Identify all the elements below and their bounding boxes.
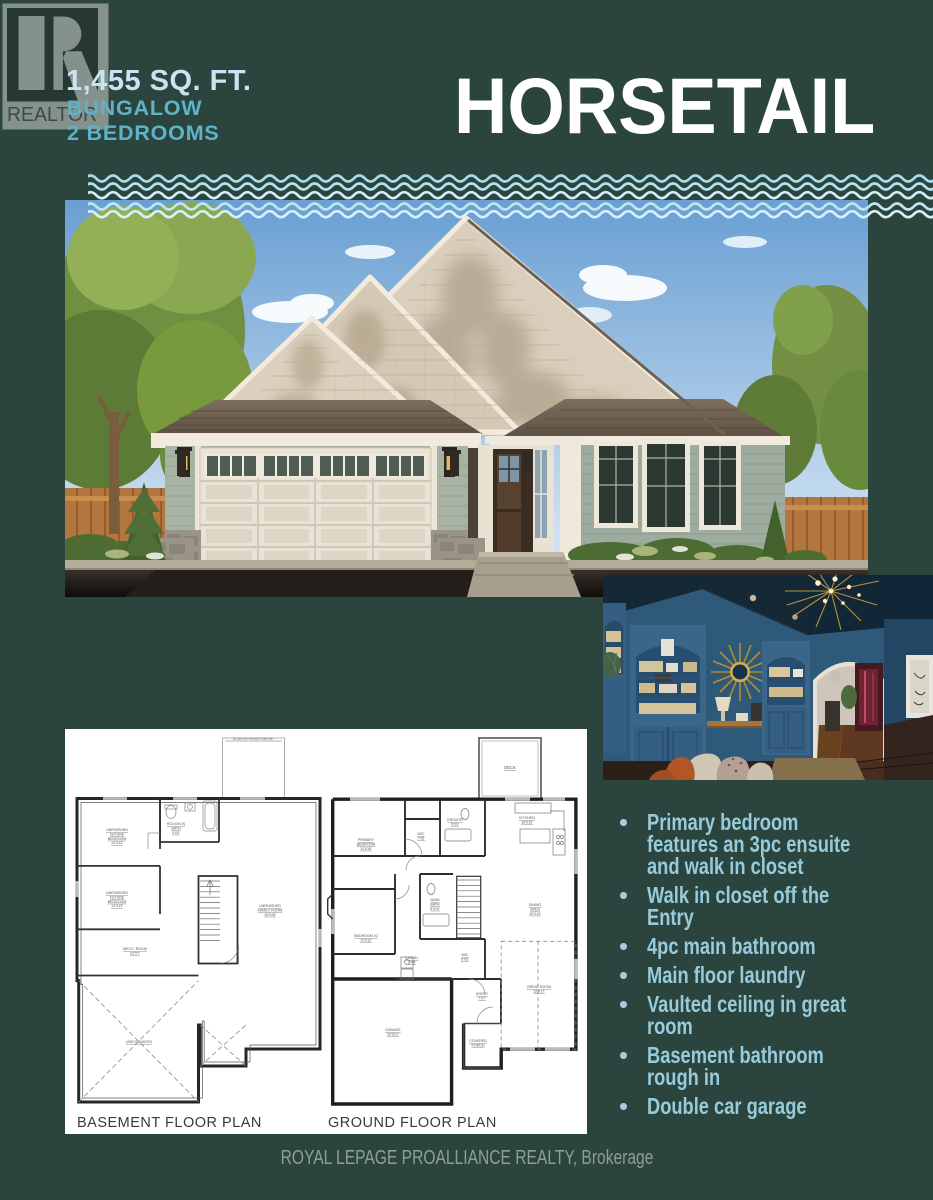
svg-text:WIC: WIC <box>462 953 469 957</box>
svg-text:FAMILY ROOM: FAMILY ROOM <box>258 908 283 912</box>
svg-text:12'X17': 12'X17' <box>533 989 545 993</box>
svg-text:KITCHEN: KITCHEN <box>519 816 535 820</box>
svg-text:COVERED: COVERED <box>469 1039 487 1043</box>
svg-text:MAIN: MAIN <box>431 898 440 902</box>
svg-text:9'X5': 9'X5' <box>172 831 180 835</box>
svg-text:BEDROOM: BEDROOM <box>357 842 376 846</box>
svg-text:BASEMENT FLOOR PLAN: BASEMENT FLOOR PLAN <box>77 1115 262 1131</box>
svg-text:ENSUITE: ENSUITE <box>447 818 463 822</box>
svg-text:PRIMARY: PRIMARY <box>358 838 375 842</box>
svg-text:16'X10': 16'X10' <box>521 820 533 824</box>
svg-text:BATH: BATH <box>171 826 181 830</box>
svg-text:11'X12': 11'X12' <box>360 938 372 942</box>
svg-text:20'X21': 20'X21' <box>387 1032 399 1036</box>
svg-text:ENTRY: ENTRY <box>476 992 489 996</box>
svg-text:BEDROOM: BEDROOM <box>108 900 127 904</box>
svg-text:AREA: AREA <box>530 907 540 911</box>
svg-text:FUTURE: FUTURE <box>110 832 125 836</box>
svg-text:5'X9': 5'X9' <box>451 822 459 826</box>
svg-text:BATH: BATH <box>430 902 440 906</box>
svg-text:UNEXCAVATED: UNEXCAVATED <box>126 1040 153 1044</box>
svg-text:22'X7': 22'X7' <box>130 951 140 955</box>
svg-text:DECK: DECK <box>504 765 516 770</box>
svg-text:UNFINISHED: UNFINISHED <box>106 828 128 832</box>
svg-text:7'X7': 7'X7' <box>478 996 486 1000</box>
svg-text:MECH. ROOM: MECH. ROOM <box>123 947 147 951</box>
svg-text:DINING: DINING <box>529 903 542 907</box>
svg-text:LAUND.: LAUND. <box>405 956 418 960</box>
svg-text:BEDROOM: BEDROOM <box>108 837 127 841</box>
svg-text:7'X6': 7'X6' <box>408 960 416 964</box>
svg-text:WIC: WIC <box>418 832 425 836</box>
svg-text:GREAT ROOM: GREAT ROOM <box>527 985 551 989</box>
svg-text:SLAB ON GRADE ABOVE: SLAB ON GRADE ABOVE <box>233 737 274 741</box>
svg-text:12'X13': 12'X13' <box>111 841 123 845</box>
svg-text:7'X5': 7'X5' <box>417 836 425 840</box>
svg-text:UNFINISHED: UNFINISHED <box>106 891 128 895</box>
svg-text:GARAGE: GARAGE <box>385 1028 401 1032</box>
svg-text:BEDROOM #2: BEDROOM #2 <box>354 934 378 938</box>
svg-text:GROUND FLOOR PLAN: GROUND FLOOR PLAN <box>328 1115 497 1131</box>
svg-text:ROUGH-IN: ROUGH-IN <box>167 822 186 826</box>
svg-text:PORCH: PORCH <box>472 1043 485 1047</box>
svg-text:11'X15': 11'X15' <box>360 847 372 851</box>
svg-text:5'X10': 5'X10' <box>430 907 440 911</box>
svg-text:UNFINISHED: UNFINISHED <box>259 904 281 908</box>
svg-text:FUTURE: FUTURE <box>110 895 125 899</box>
svg-text:6'X5': 6'X5' <box>461 957 469 961</box>
svg-text:15'X28': 15'X28' <box>264 913 276 917</box>
svg-text:12'X13': 12'X13' <box>111 904 123 908</box>
svg-text:10'X13': 10'X13' <box>529 912 541 916</box>
